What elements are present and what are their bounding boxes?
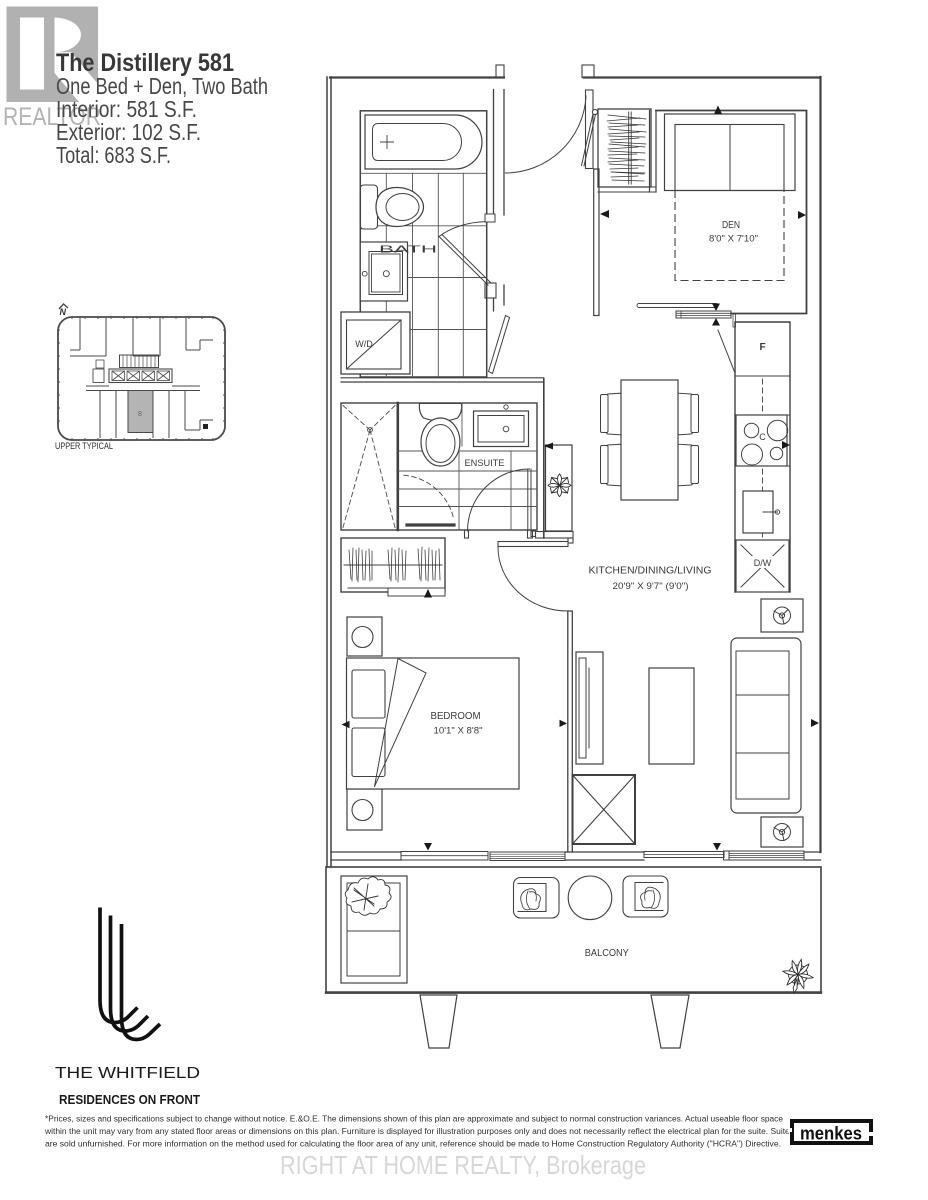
svg-text:BALCONY: BALCONY [585,948,629,959]
svg-text:are sold unfurnished. For more: are sold unfurnished. For more informati… [45,1139,781,1149]
svg-text:W/D: W/D [355,339,373,349]
svg-text:C: C [759,432,766,442]
svg-text:RIGHT AT HOME REALTY, Brokerag: RIGHT AT HOME REALTY, Brokerage [280,1150,646,1180]
svg-text:10'1" X 8'8": 10'1" X 8'8" [434,726,483,737]
svg-text:DEN: DEN [722,220,740,231]
svg-text:Total: 683 S.F.: Total: 683 S.F. [56,142,171,168]
svg-text:20'9" X 9'7" (9'0"): 20'9" X 9'7" (9'0") [613,581,689,592]
svg-text:F: F [759,342,765,353]
svg-text:ENSUITE: ENSUITE [465,458,505,469]
svg-text:UPPER TYPICAL: UPPER TYPICAL [55,441,113,452]
svg-text:menkes: menkes [800,1124,862,1144]
svg-text:BEDROOM: BEDROOM [431,711,481,722]
svg-text:THE WHITFIELD: THE WHITFIELD [55,1065,200,1082]
svg-text:D/W: D/W [754,558,772,568]
svg-text:8: 8 [138,411,142,418]
svg-text:within the unit may vary from: within the unit may vary from any stated… [44,1126,794,1136]
svg-text:RESIDENCES ON FRONT: RESIDENCES ON FRONT [59,1093,200,1107]
svg-text:8'0" X 7'10": 8'0" X 7'10" [709,234,758,245]
svg-text:N: N [60,307,67,317]
svg-text:BATH: BATH [379,244,437,256]
svg-text:*Prices, sizes and specificati: *Prices, sizes and specifications subjec… [45,1114,783,1124]
svg-text:KITCHEN/DINING/LIVING: KITCHEN/DINING/LIVING [589,566,712,577]
